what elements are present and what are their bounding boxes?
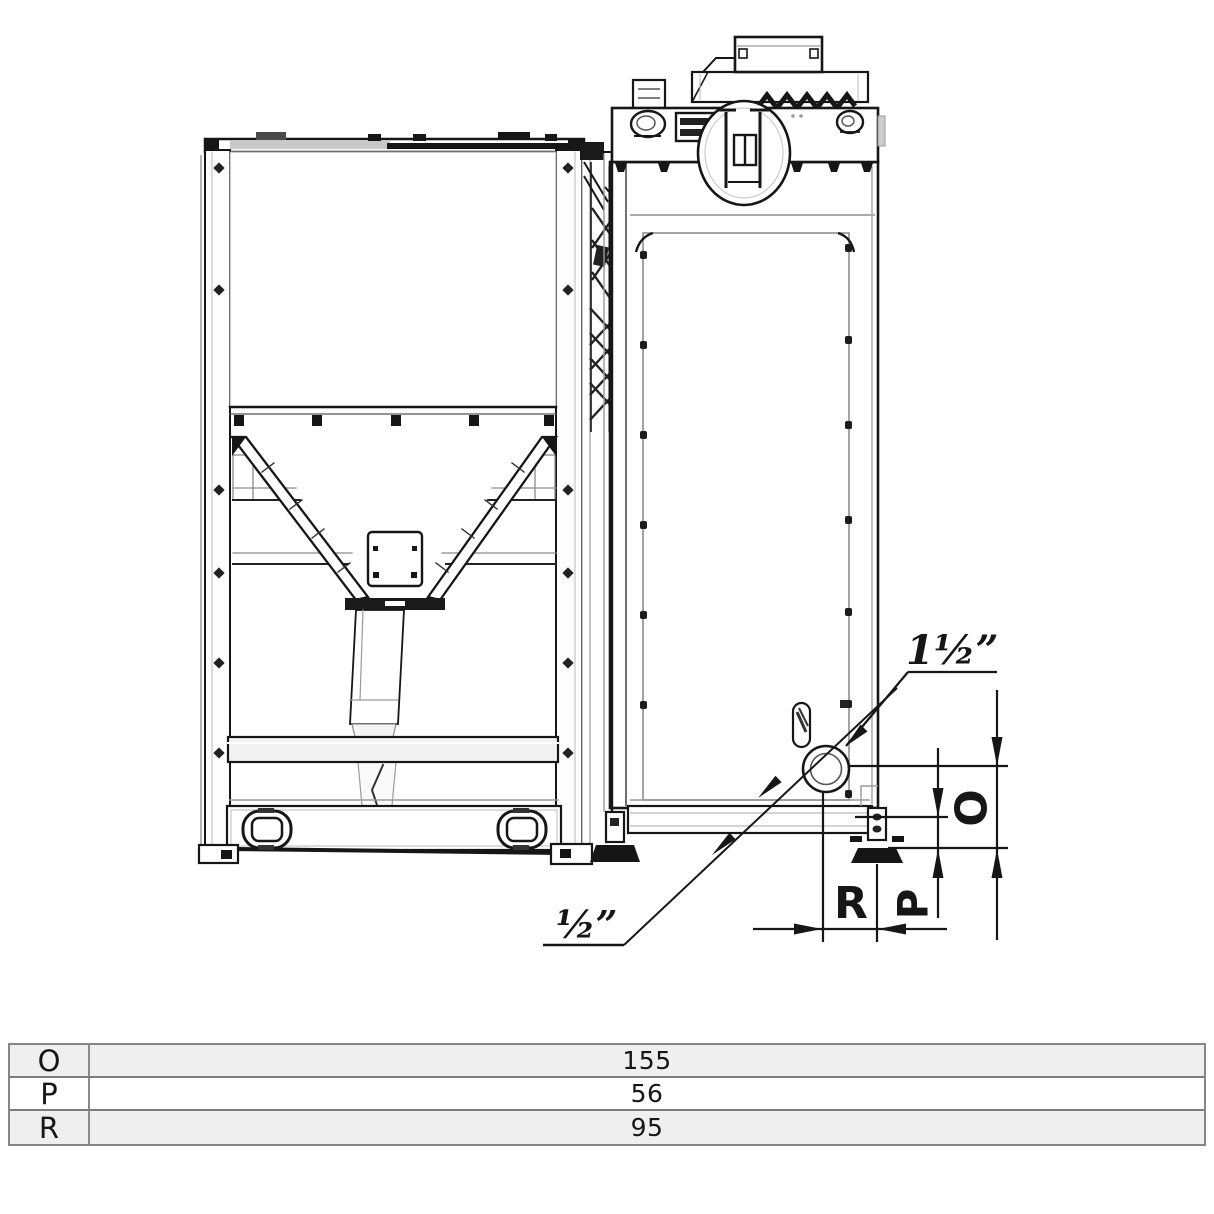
spec-value-p: 56 (90, 1078, 1204, 1109)
fan-housing (698, 101, 790, 205)
spec-label-r: R (10, 1111, 90, 1144)
hopper-base (227, 806, 561, 853)
hopper-right-rail (556, 150, 590, 846)
fitting-bottom-label: ½” (556, 902, 618, 947)
dim-o-label: O (947, 789, 998, 826)
spec-row-p: P 56 (10, 1078, 1204, 1111)
knob-right (837, 111, 863, 133)
boiler-chimney (633, 37, 868, 108)
hopper-unit (199, 132, 592, 864)
hopper-upper-panel (230, 152, 556, 407)
hopper-top-tab (256, 132, 286, 140)
spec-label-p: P (10, 1078, 90, 1109)
technical-drawing-page: O P R 1½” ½” (0, 0, 1214, 1214)
hopper-chute (350, 610, 404, 806)
spec-value-r: 95 (90, 1111, 1204, 1144)
spec-row-r: R 95 (10, 1111, 1204, 1144)
boiler-unit (590, 37, 904, 863)
hopper-mid-seam (230, 407, 556, 426)
hopper-left-rail (201, 150, 230, 850)
fork-slot-right (498, 808, 546, 850)
spec-row-o: O 155 (10, 1045, 1204, 1078)
knob-left (631, 111, 665, 137)
spec-table: O 155 P 56 R 95 (8, 1043, 1206, 1146)
dim-r-label: R (834, 878, 868, 929)
spec-label-o: O (10, 1045, 90, 1076)
fork-slot-left (243, 808, 291, 850)
dimension-p: P (889, 748, 944, 919)
chimney-side-box (633, 80, 665, 108)
fitting-top-label: 1½” (906, 627, 999, 674)
boiler-body (610, 162, 878, 808)
spec-value-o: 155 (90, 1045, 1204, 1076)
hopper-access-plate (368, 532, 422, 586)
boiler-hopper-drawing: O P R 1½” ½” (0, 0, 1214, 1214)
hopper-cross-rail (228, 737, 558, 762)
dim-p-label: P (889, 889, 938, 920)
dimension-o: O (947, 690, 1003, 940)
